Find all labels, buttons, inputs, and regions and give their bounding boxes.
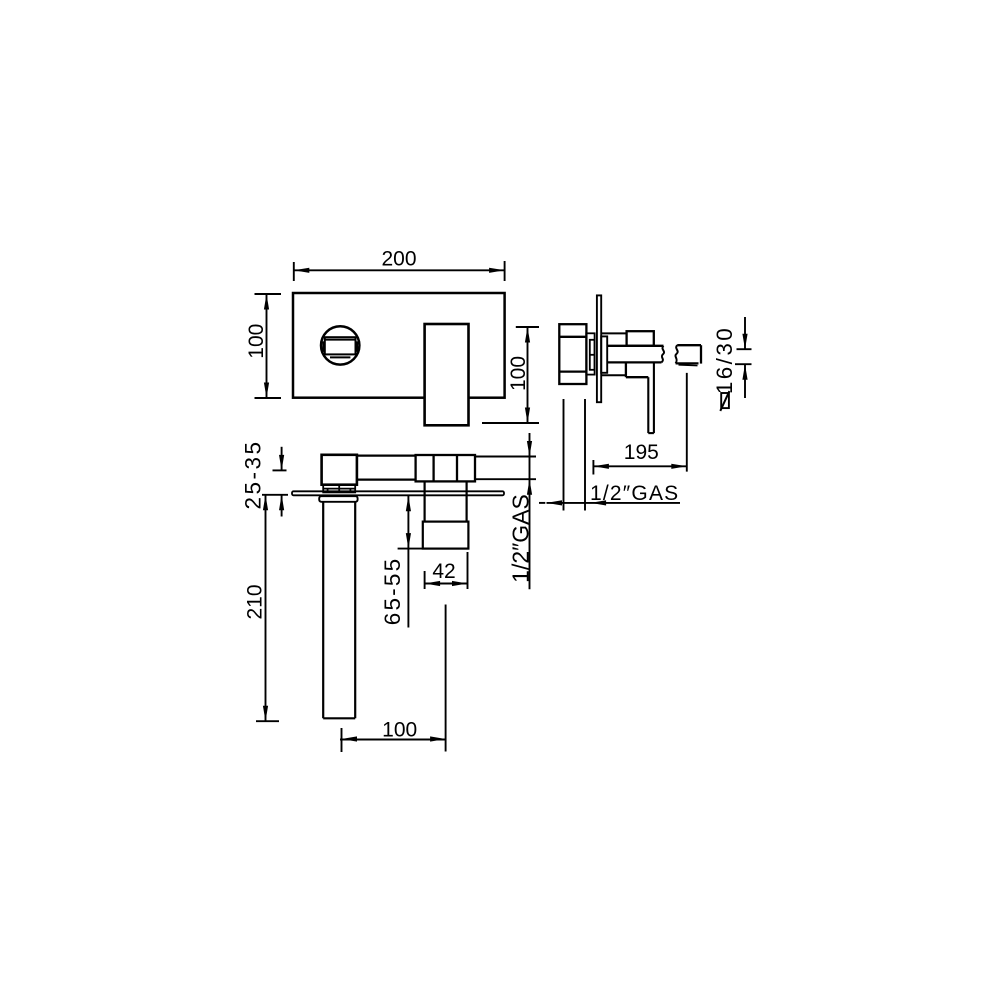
svg-text:1/2″GAS: 1/2″GAS [508, 494, 534, 583]
svg-text:16/30: 16/30 [712, 326, 737, 394]
svg-text:200: 200 [381, 248, 416, 271]
svg-text:100: 100 [382, 719, 417, 742]
svg-text:210: 210 [244, 584, 267, 619]
svg-text:100: 100 [245, 324, 268, 359]
svg-text:25-35: 25-35 [241, 439, 266, 509]
svg-text:195: 195 [624, 441, 659, 464]
svg-text:42: 42 [432, 560, 455, 583]
svg-text:65-55: 65-55 [380, 557, 405, 626]
svg-text:100: 100 [507, 356, 530, 391]
